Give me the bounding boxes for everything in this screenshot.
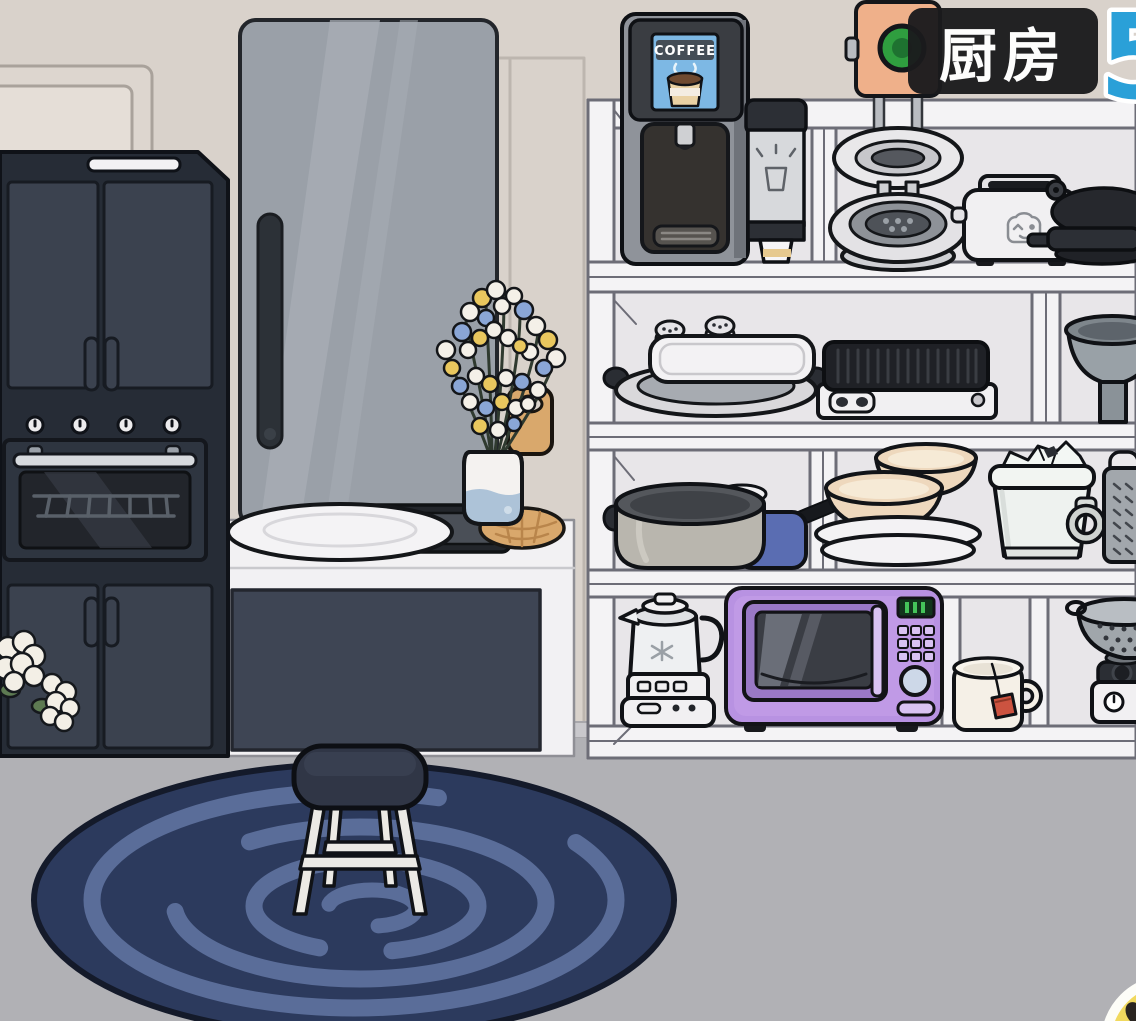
dinner-plate[interactable] xyxy=(228,504,452,560)
lower-door-right[interactable] xyxy=(104,585,212,748)
toaster-lever[interactable] xyxy=(952,208,966,222)
room-label-text: 厨房 xyxy=(939,9,1067,93)
cooking-pot[interactable] xyxy=(604,484,764,568)
microwave-button[interactable] xyxy=(898,702,934,715)
flower-vase[interactable] xyxy=(464,452,522,524)
fridge-freezer-cabinet[interactable] xyxy=(0,152,228,756)
glass-door[interactable] xyxy=(240,20,497,526)
wall-oven[interactable] xyxy=(4,417,206,560)
plate-stack[interactable] xyxy=(816,517,980,565)
door-handle[interactable] xyxy=(258,214,282,448)
microwave-display xyxy=(898,598,934,617)
paper-cup-dispenser[interactable] xyxy=(746,100,806,262)
watermark-digit: 5 xyxy=(1099,0,1136,126)
coffee-machine[interactable]: COFFEE xyxy=(622,14,748,264)
upper-door-right[interactable] xyxy=(104,182,212,388)
kitchen-scene: COFFEE xyxy=(0,0,1136,1021)
microwave-dial[interactable] xyxy=(901,667,929,695)
box-grater[interactable] xyxy=(1104,452,1136,562)
microwave[interactable] xyxy=(726,588,942,732)
coffee-screen: COFFEE xyxy=(652,34,718,110)
microwave-handle xyxy=(872,606,883,696)
oven-handle xyxy=(14,454,196,467)
coffee-label: COFFEE xyxy=(654,44,716,59)
room-label: 厨房 xyxy=(908,8,1098,94)
microwave-keypad[interactable] xyxy=(898,626,934,661)
electric-grill[interactable] xyxy=(818,342,996,418)
portable-stove[interactable] xyxy=(1092,662,1136,722)
